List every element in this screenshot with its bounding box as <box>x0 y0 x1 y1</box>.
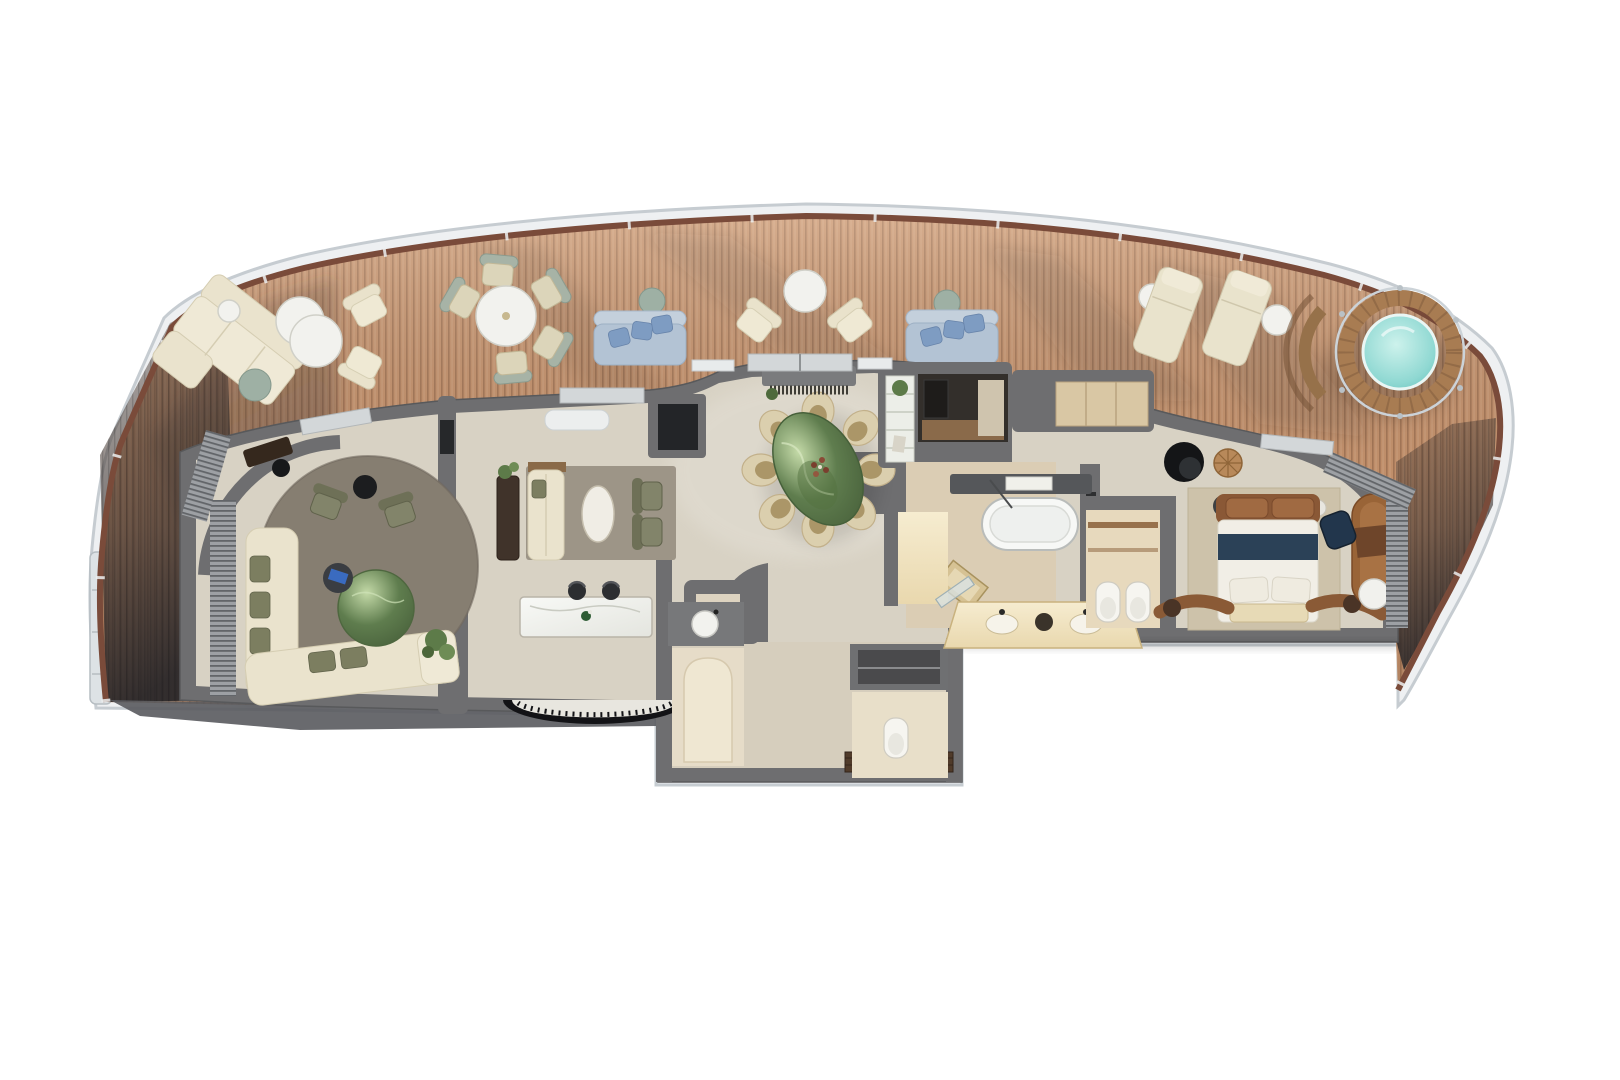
corridor-left-wall <box>656 560 672 782</box>
headboard-cushion <box>1272 498 1314 518</box>
tv-niche <box>658 404 698 450</box>
shelf-books <box>892 435 906 453</box>
deck-daybed <box>594 311 686 365</box>
shower <box>898 512 948 604</box>
toilet <box>1096 582 1120 622</box>
guest-wc <box>852 692 948 778</box>
arched-niche <box>684 658 732 762</box>
whirlpool-water <box>1363 315 1437 389</box>
wc-room <box>1086 510 1160 628</box>
bar-stool <box>568 582 586 600</box>
console-plant <box>509 462 519 472</box>
media-console <box>497 476 519 560</box>
faucet <box>714 610 719 615</box>
powder-room <box>668 602 744 766</box>
curtain <box>1386 492 1408 628</box>
olive-armchair <box>632 514 662 550</box>
towel <box>1006 477 1052 490</box>
deck-round-table <box>784 270 826 312</box>
foot-bench <box>1230 604 1308 622</box>
vanity-stool <box>1035 613 1053 631</box>
sofa-pillow <box>250 592 270 618</box>
deck-sage-table <box>639 288 665 314</box>
sofa-pillow <box>250 556 270 582</box>
wood-shelf <box>1088 548 1158 552</box>
sink <box>986 614 1018 634</box>
shower-left-wall <box>884 510 898 606</box>
bidet <box>1126 582 1150 622</box>
sofa-pillow <box>532 480 546 498</box>
rattan-side-table <box>1214 449 1242 477</box>
appliance <box>924 380 948 418</box>
wc-top-wall <box>1086 496 1166 510</box>
sofa-pillow <box>250 628 270 654</box>
dressing-closet <box>1012 370 1154 432</box>
desk-chair <box>272 459 290 477</box>
navy-runner <box>1218 534 1318 560</box>
headboard-cushion <box>1226 498 1268 518</box>
wood-shelf <box>1088 522 1158 528</box>
deck-door <box>560 388 644 403</box>
black-side-table <box>353 475 377 499</box>
tv-screen <box>440 420 454 454</box>
pantry <box>878 362 1012 468</box>
floor-plan-render <box>0 0 1620 1080</box>
pillow <box>1229 577 1269 604</box>
parasol-pole <box>502 312 510 320</box>
hanging-plant <box>766 388 778 400</box>
deck-daybed <box>906 310 998 364</box>
floor-plan-canvas <box>0 0 1620 1080</box>
bench-cushion <box>1163 599 1181 617</box>
oval-coffee-table <box>582 486 614 542</box>
toilet <box>884 718 908 758</box>
window-sill <box>858 358 892 369</box>
round-side-table <box>1359 579 1389 609</box>
wardrobe-niche <box>1056 382 1148 426</box>
deck-round-table <box>290 315 342 367</box>
curtain <box>210 500 236 696</box>
wall-console <box>545 410 609 430</box>
round-basin <box>692 611 718 637</box>
deck-sage-table <box>239 369 271 401</box>
olive-armchair <box>632 478 662 514</box>
galley-door <box>978 380 1004 436</box>
deck-side-table <box>218 300 240 322</box>
bar-stool <box>602 582 620 600</box>
shelf-plant <box>892 380 908 396</box>
window-sill <box>692 360 734 371</box>
pillow <box>1271 577 1311 604</box>
faucet <box>999 609 1005 615</box>
